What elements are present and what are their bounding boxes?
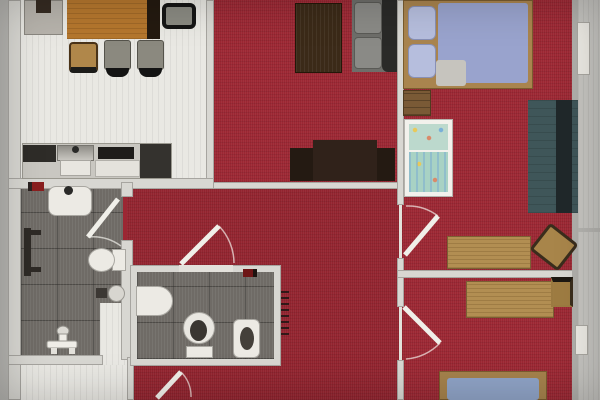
door-bottom-left [157,372,191,398]
door-bathroom-left [88,199,121,246]
floor-plan [0,0,600,400]
door-bedroom-bottom-right [404,307,440,359]
door-bedroom-top-right [405,206,438,255]
shower-fitting [47,326,77,354]
symbols-overlay [0,0,600,400]
door-wc [181,226,234,264]
radiator-ticks [281,292,289,334]
